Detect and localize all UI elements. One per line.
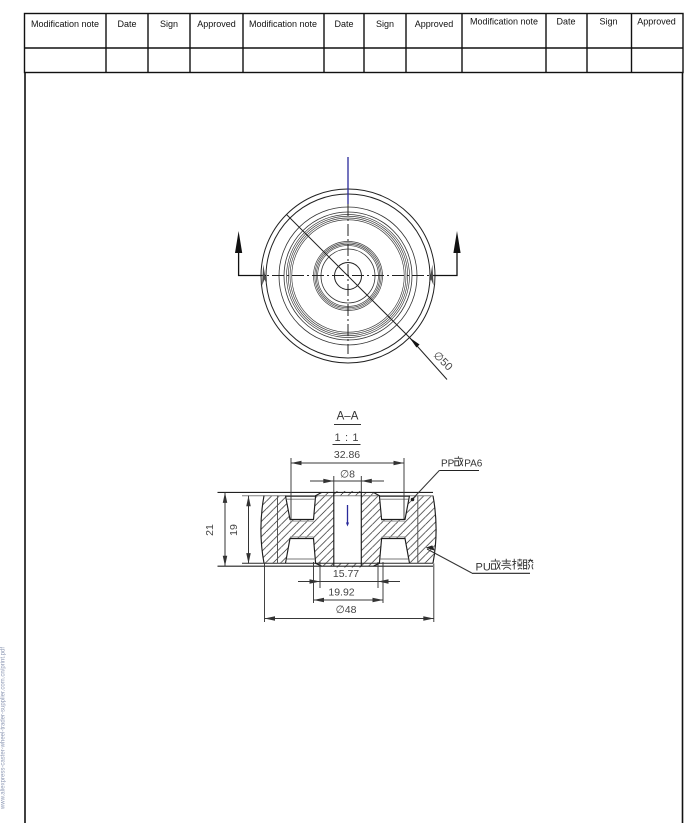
svg-text:PP: PP [441,459,455,470]
svg-text:Sign: Sign [599,17,617,27]
svg-text:1 : 1: 1 : 1 [334,432,358,444]
svg-text:PU: PU [476,562,491,574]
svg-text:A–A: A–A [337,411,359,423]
svg-text:Modification note: Modification note [249,19,317,29]
svg-text:Approved: Approved [415,19,454,29]
svg-text:∅8: ∅8 [340,469,355,481]
svg-text:Modification note: Modification note [470,17,538,27]
svg-text:Approved: Approved [637,17,676,27]
svg-text:∅48: ∅48 [336,604,357,616]
svg-text:www.aliexpress-caster-wheel-tr: www.aliexpress-caster-wheel-trader-suppl… [1,647,7,810]
svg-text:Sign: Sign [376,19,394,29]
svg-text:Date: Date [334,19,353,29]
svg-text:Sign: Sign [160,19,178,29]
svg-text:19.92: 19.92 [328,587,354,599]
svg-text:32.86: 32.86 [334,449,360,461]
svg-text:Date: Date [556,17,575,27]
svg-text:PA6: PA6 [464,459,483,470]
svg-text:21: 21 [204,524,216,536]
svg-text:19: 19 [228,524,240,536]
svg-text:Date: Date [117,19,136,29]
svg-text:15.77: 15.77 [333,568,359,580]
svg-text:Modification note: Modification note [31,19,99,29]
svg-text:Approved: Approved [197,19,236,29]
